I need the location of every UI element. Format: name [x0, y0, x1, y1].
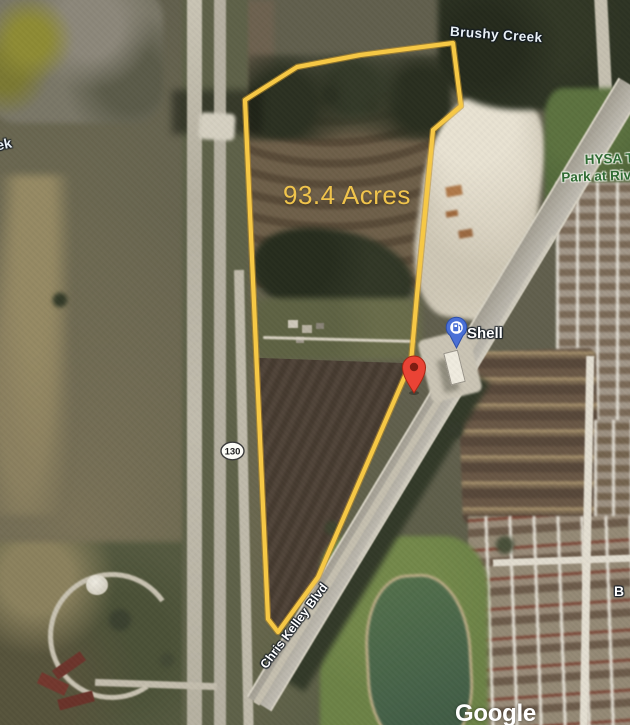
- red-marker-pin-icon[interactable]: [403, 356, 426, 395]
- red-pin-inner-dot: [410, 363, 418, 371]
- boundary-outline: [245, 43, 461, 632]
- highway-shield-130: 130: [221, 442, 244, 460]
- park-label-line2: Park at Riv: [561, 165, 630, 186]
- fuel-pump-window: [454, 325, 457, 327]
- boundary-outline-edge: [245, 43, 461, 632]
- map-overlay: 130: [0, 0, 630, 725]
- park-label: HYSA T Park at Riv: [560, 148, 630, 186]
- shield-number: 130: [225, 447, 241, 458]
- fuel-pump-icon: [453, 323, 458, 331]
- park-label-line1: HYSA T: [560, 148, 630, 169]
- satellite-map[interactable]: 130 Brushy Creek ek 93.4 Acres Shell HYS…: [0, 0, 630, 725]
- street-label-partial: B: [614, 583, 624, 599]
- red-pin-body: [403, 356, 426, 393]
- parcel-boundary-polygon: [245, 43, 461, 632]
- gas-station-label[interactable]: Shell: [467, 325, 503, 342]
- parcel-acreage-label: 93.4 Acres: [283, 180, 411, 211]
- gas-station-pin-icon[interactable]: [446, 317, 467, 348]
- google-watermark-logo[interactable]: Google: [455, 700, 536, 725]
